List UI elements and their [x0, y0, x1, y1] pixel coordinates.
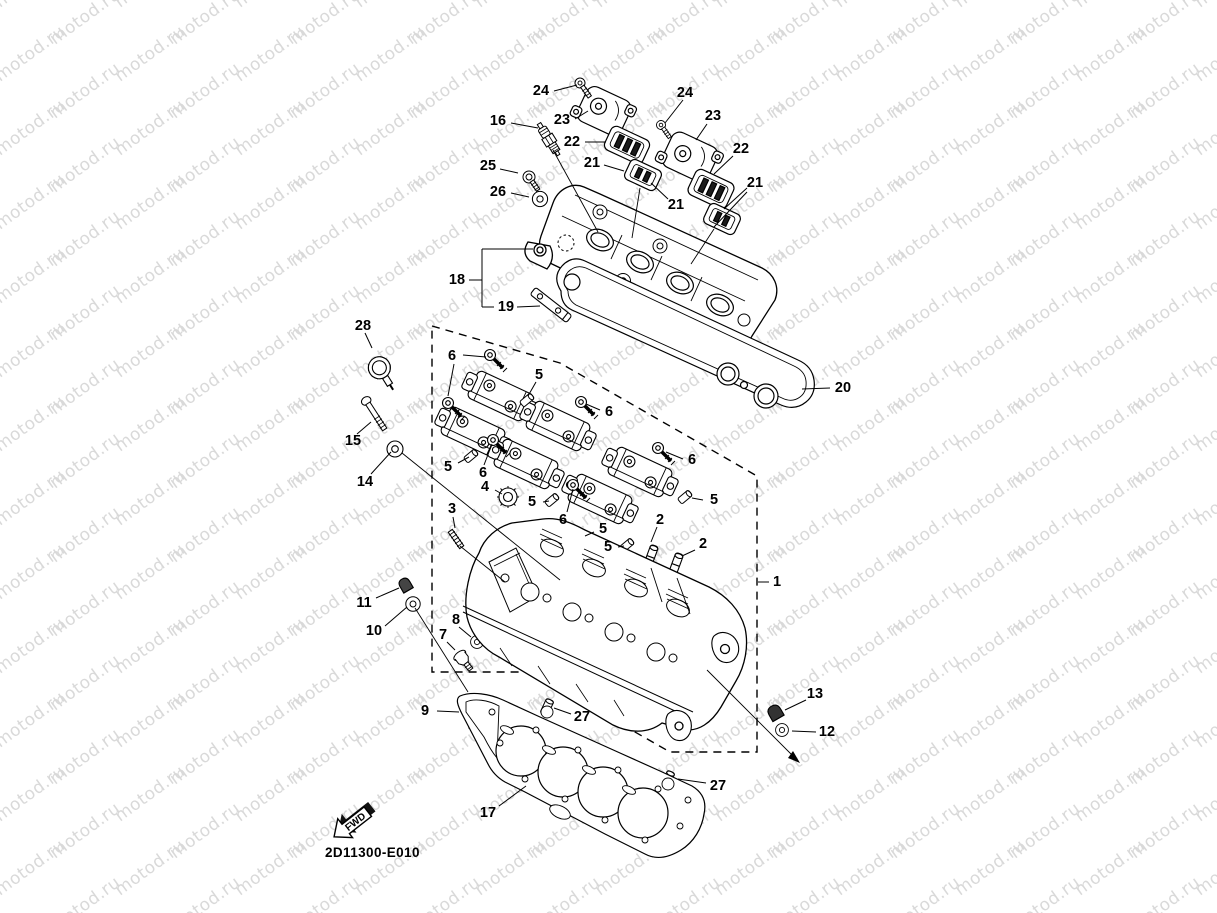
watermark-text: motod.ru: [351, 244, 429, 308]
watermark-text: motod.ru: [231, 540, 309, 604]
watermark-text: motod.ru: [0, 0, 69, 12]
watermark-text: motod.ru: [231, 688, 309, 752]
watermark-text: motod.ru: [111, 614, 189, 678]
watermark-text: motod.ru: [1071, 96, 1149, 160]
watermark-text: motod.ru: [711, 466, 789, 530]
watermark-text: motod.ru: [0, 392, 69, 456]
watermark-text: motod.ru: [951, 318, 1029, 382]
watermark-text: motod.ru: [231, 318, 309, 382]
watermark-text: motod.ru: [1126, 873, 1204, 913]
callout-label-27: 27: [574, 709, 590, 725]
watermark-text: motod.ru: [111, 392, 189, 456]
callout-label-3: 3: [448, 501, 456, 517]
callout-label-23: 23: [554, 112, 570, 128]
callout-label-5: 5: [444, 459, 452, 475]
leader-line: [371, 452, 391, 474]
watermark-text: motod.ru: [351, 96, 429, 160]
watermark-text: motod.ru: [831, 540, 909, 604]
watermark-text: motod.ru: [111, 466, 189, 530]
callout-label-16: 16: [490, 113, 506, 129]
stud-washer: [387, 441, 403, 457]
leader-line: [463, 355, 486, 357]
watermark-text: motod.ru: [231, 392, 309, 456]
callout-label-11: 11: [356, 595, 371, 611]
watermark-text: motod.ru: [231, 836, 309, 900]
watermark-text: motod.ru: [1071, 540, 1149, 604]
callout-label-28: 28: [355, 318, 371, 334]
callout-label-14: 14: [357, 474, 373, 490]
callout-label-19: 19: [498, 299, 514, 315]
watermark-text: motod.ru: [951, 762, 1029, 826]
leader-line: [459, 627, 471, 637]
callout-label-1: 1: [773, 574, 781, 590]
watermark-text: motod.ru: [951, 244, 1029, 308]
watermark-text: motod.ru: [111, 170, 189, 234]
watermark-text: motod.ru: [711, 540, 789, 604]
callout-label-7: 7: [439, 627, 447, 643]
watermark-text: motod.ru: [951, 836, 1029, 900]
cover-bolt-washer: [532, 191, 547, 206]
watermark-text: motod.ru: [1071, 466, 1149, 530]
leader-line: [365, 333, 372, 348]
callout-label-23: 23: [705, 108, 721, 124]
callout-label-5: 5: [604, 539, 612, 555]
watermark-text: motod.ru: [951, 96, 1029, 160]
callout-label-25: 25: [480, 158, 496, 174]
watermark-text: motod.ru: [471, 836, 549, 900]
leader-line: [437, 711, 459, 712]
callout-label-6: 6: [688, 452, 696, 468]
watermark-text: motod.ru: [1071, 22, 1149, 86]
watermark-text: motod.ru: [1071, 318, 1149, 382]
watermark-text: motod.ru: [1006, 873, 1084, 913]
watermark-text: motod.ru: [166, 873, 244, 913]
watermark-text: motod.ru: [351, 170, 429, 234]
watermark-text: motod.ru: [951, 614, 1029, 678]
watermark-text: motod.ru: [0, 466, 69, 530]
watermark-text: motod.ru: [591, 22, 669, 86]
callout-label-18: 18: [449, 272, 465, 288]
watermark-text: motod.ru: [951, 22, 1029, 86]
callout-label-6: 6: [605, 404, 613, 420]
callout-label-21: 21: [747, 175, 763, 191]
watermark-text: motod.ru: [526, 873, 604, 913]
callout-label-24: 24: [677, 85, 693, 101]
callout-label-5: 5: [710, 492, 718, 508]
callout-label-12: 12: [819, 724, 835, 740]
watermark-text: motod.ru: [0, 762, 69, 826]
callout-label-22: 22: [564, 134, 580, 150]
drain-washer: [776, 724, 789, 737]
watermark-text: motod.ru: [0, 836, 69, 900]
callout-label-10: 10: [366, 623, 382, 639]
watermark-text: motod.ru: [231, 96, 309, 160]
watermark-text: motod.ru: [46, 873, 124, 913]
callout-label-27: 27: [710, 778, 726, 794]
watermark-text: motod.ru: [951, 392, 1029, 456]
callout-label-2: 2: [656, 512, 664, 528]
leader-line: [692, 498, 703, 500]
watermark-text: motod.ru: [111, 244, 189, 308]
watermark-text: motod.ru: [711, 836, 789, 900]
callout-label-6: 6: [559, 512, 567, 528]
watermark-text: motod.ru: [231, 614, 309, 678]
watermark-text: motod.ru: [831, 762, 909, 826]
callout-label-21: 21: [668, 197, 684, 213]
callout-label-21: 21: [584, 155, 600, 171]
watermark-text: motod.ru: [831, 22, 909, 86]
watermark-text: motod.ru: [831, 318, 909, 382]
watermark-text: motod.ru: [111, 318, 189, 382]
watermark-text: motod.ru: [831, 836, 909, 900]
watermark-text: motod.ru: [951, 170, 1029, 234]
watermark-text: motod.ru: [1071, 244, 1149, 308]
watermark-text: motod.ru: [1071, 836, 1149, 900]
watermark-text: motod.ru: [831, 614, 909, 678]
callout-label-8: 8: [452, 612, 460, 628]
parts-diagram-page: motod.rumotod.rumotod.rumotod.rumotod.ru…: [0, 0, 1217, 913]
watermark-text: motod.ru: [951, 540, 1029, 604]
leader-line: [604, 165, 624, 171]
callout-label-17: 17: [480, 805, 496, 821]
callout-label-26: 26: [490, 184, 506, 200]
watermark-text: motod.ru: [1071, 614, 1149, 678]
part-code: 2D11300-E010: [325, 845, 420, 860]
stud-washer-2: [406, 597, 420, 611]
watermark-text: motod.ru: [831, 96, 909, 160]
watermark-text: motod.ru: [711, 22, 789, 86]
watermark-text: motod.ru: [351, 688, 429, 752]
callout-label-20: 20: [835, 380, 851, 396]
leader-line: [447, 642, 455, 650]
watermark-text: motod.ru: [951, 466, 1029, 530]
watermark-text: motod.ru: [111, 22, 189, 86]
watermark-text: motod.ru: [0, 170, 69, 234]
watermark-text: motod.ru: [0, 96, 69, 160]
watermark-text: motod.ru: [111, 96, 189, 160]
watermark-text: motod.ru: [831, 466, 909, 530]
watermark-text: motod.ru: [831, 392, 909, 456]
watermark-text: motod.ru: [286, 873, 364, 913]
watermark-text: motod.ru: [0, 540, 69, 604]
watermark-text: motod.ru: [831, 688, 909, 752]
watermark-text: motod.ru: [831, 244, 909, 308]
watermark-text: motod.ru: [1071, 392, 1149, 456]
watermark-text: motod.ru: [231, 466, 309, 530]
watermark-text: motod.ru: [111, 836, 189, 900]
callout-label-13: 13: [807, 686, 823, 702]
callout-label-22: 22: [733, 141, 749, 157]
leader-line: [792, 731, 816, 732]
cap-nut: [397, 576, 413, 593]
watermark-text: motod.ru: [231, 762, 309, 826]
watermark-text: motod.ru: [951, 688, 1029, 752]
callout-label-2: 2: [699, 536, 707, 552]
exploded-parts-diagram: motod.rumotod.rumotod.rumotod.rumotod.ru…: [0, 0, 1217, 913]
watermark-text: motod.ru: [646, 873, 724, 913]
watermark-text: motod.ru: [766, 873, 844, 913]
leader-line: [554, 708, 571, 714]
watermark-text: motod.ru: [1071, 170, 1149, 234]
coil-bolt-right: [655, 119, 674, 140]
watermark-text: motod.ru: [831, 170, 909, 234]
watermark-text: motod.ru: [471, 22, 549, 86]
watermark-text: motod.ru: [0, 318, 69, 382]
callout-label-15: 15: [345, 433, 361, 449]
callout-label-5: 5: [528, 494, 536, 510]
watermark-text: motod.ru: [1071, 688, 1149, 752]
callout-label-4: 4: [481, 479, 489, 495]
watermark-text: motod.ru: [711, 96, 789, 160]
callout-label-24: 24: [533, 83, 549, 99]
watermark-text: motod.ru: [0, 688, 69, 752]
watermark-text: motod.ru: [0, 614, 69, 678]
callout-label-6: 6: [448, 348, 456, 364]
watermark-text: motod.ru: [111, 688, 189, 752]
watermark-text: motod.ru: [0, 22, 69, 86]
watermark-text: motod.ru: [231, 22, 309, 86]
callout-label-5: 5: [599, 521, 607, 537]
leader-line: [500, 169, 518, 173]
watermark-text: motod.ru: [231, 170, 309, 234]
watermark-text: motod.ru: [406, 873, 484, 913]
callout-label-5: 5: [535, 367, 543, 383]
watermark-text: motod.ru: [111, 762, 189, 826]
watermark-text: motod.ru: [1071, 762, 1149, 826]
callout-label-9: 9: [421, 703, 429, 719]
watermark-text: motod.ru: [886, 873, 964, 913]
leader-line: [517, 306, 540, 307]
watermark-text: motod.ru: [0, 244, 69, 308]
watermark-text: motod.ru: [351, 22, 429, 86]
watermark-text: motod.ru: [111, 540, 189, 604]
leader-line: [682, 550, 695, 556]
watermark-text: motod.ru: [231, 244, 309, 308]
watermark-text: motod.ru: [351, 614, 429, 678]
